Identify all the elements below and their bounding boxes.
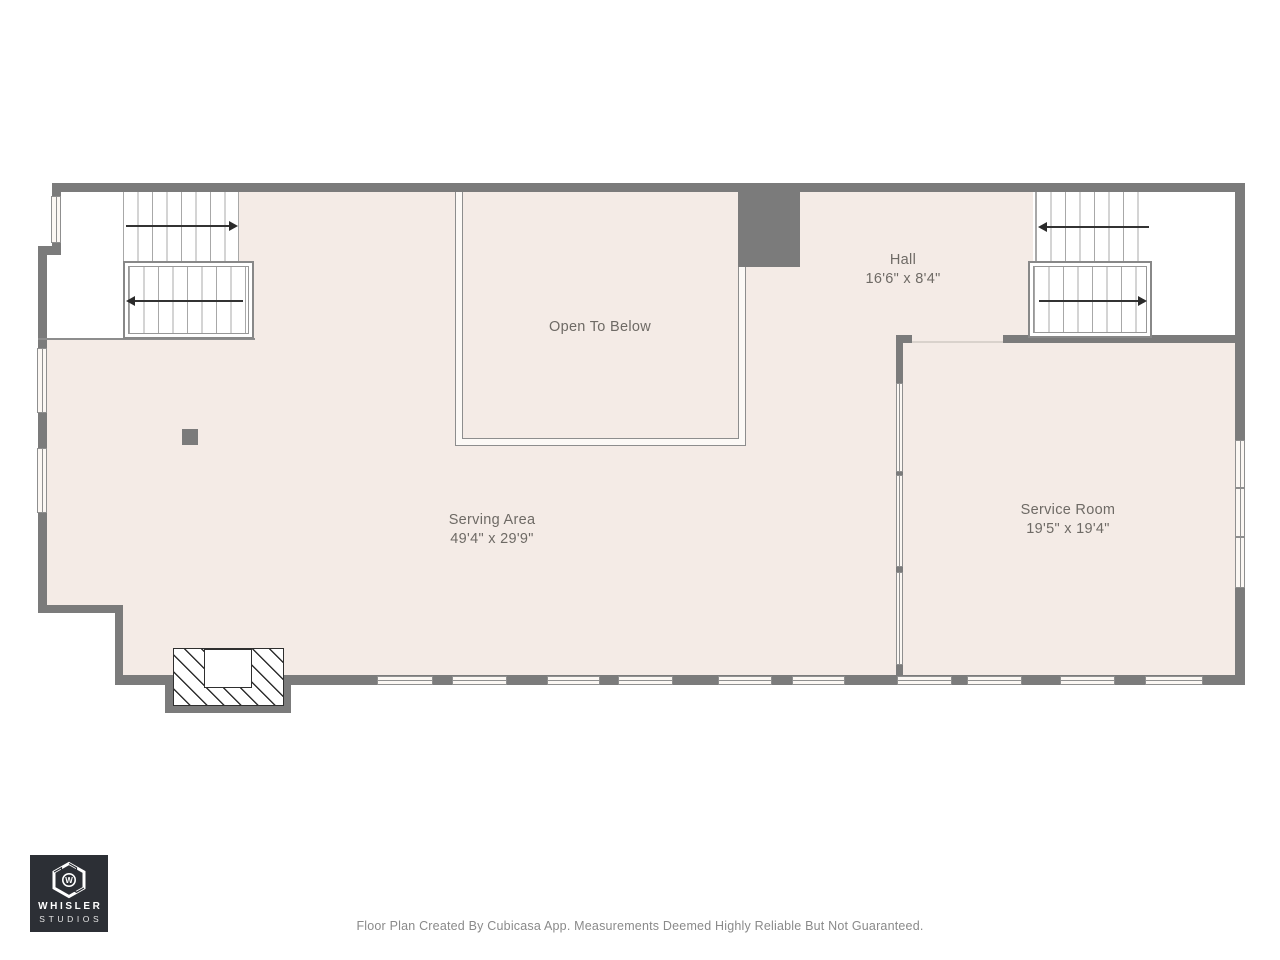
stairs-down-arrow-left-line: [135, 300, 243, 302]
window-pane-line: [899, 476, 900, 566]
logo-name-line2: STUDIOS: [36, 914, 103, 924]
window-pane-line: [1146, 680, 1202, 681]
window-pane-line: [56, 197, 57, 242]
stairs-up-arrow-left-line: [126, 225, 229, 227]
service-room-label: Service Room 19'5" x 19'4": [968, 501, 1168, 539]
exterior-notch: [47, 605, 115, 676]
stairs-down-arrow-left-head: [126, 296, 135, 306]
whisler-hexagon-monogram-icon: W: [49, 861, 89, 899]
serving-area-label: Serving Area 49'4" x 29'9": [392, 511, 592, 549]
window: [896, 475, 903, 567]
window: [967, 676, 1022, 685]
window-pane-line: [1240, 489, 1241, 536]
disclaimer-text: Floor Plan Created By Cubicasa App. Meas…: [0, 919, 1280, 933]
service-room-opening-threshold: [912, 341, 1003, 343]
hall-name: Hall: [803, 251, 1003, 270]
column-post: [182, 429, 198, 445]
open-to-below-floor: [462, 190, 739, 439]
window: [51, 196, 61, 243]
window: [718, 676, 772, 685]
window: [452, 676, 507, 685]
floor-plan-drawing: Open To Below Hall 16'6" x 8'4" Serving …: [0, 0, 1280, 960]
window-pane-line: [793, 680, 844, 681]
right-exterior-wall: [1235, 183, 1245, 685]
whisler-studios-logo: W WHISLER STUDIOS: [30, 855, 108, 932]
window: [896, 572, 903, 665]
window: [37, 448, 47, 513]
service-room-door-stub: [896, 335, 912, 343]
service-room-dimensions: 19'5" x 19'4": [968, 520, 1168, 539]
window-pane-line: [1240, 538, 1241, 587]
fireplace-firebox: [204, 649, 252, 688]
window-pane-line: [42, 349, 43, 412]
hall-dimensions: 16'6" x 8'4": [803, 270, 1003, 289]
window: [37, 348, 47, 413]
window: [1060, 676, 1115, 685]
left-wall-jog-lower: [38, 605, 123, 613]
window-pane-line: [898, 680, 951, 681]
open-to-below-label: Open To Below: [460, 318, 740, 337]
window-pane-line: [378, 680, 432, 681]
stairs-up-arrow-left-head: [229, 221, 238, 231]
stairs-up-arrow-right-line: [1047, 226, 1149, 228]
logo-name-line1: WHISLER: [36, 901, 103, 912]
window-pane-line: [899, 573, 900, 664]
window-pane-line: [1061, 680, 1114, 681]
window-pane-line: [42, 449, 43, 512]
window: [377, 676, 433, 685]
left-exterior-wall-lower: [38, 246, 47, 613]
window: [1145, 676, 1203, 685]
window: [1235, 440, 1245, 488]
serving-area-dimensions: 49'4" x 29'9": [392, 530, 592, 549]
window: [897, 676, 952, 685]
stairs-down-arrow-right-head: [1138, 296, 1147, 306]
window-pane-line: [453, 680, 506, 681]
top-exterior-wall: [52, 183, 1245, 192]
stairs-up-arrow-right-head: [1038, 222, 1047, 232]
window-pane-line: [619, 680, 672, 681]
stairs-down-arrow-right-line: [1039, 300, 1138, 302]
window-pane-line: [548, 680, 599, 681]
window: [896, 383, 903, 472]
service-room-name: Service Room: [968, 501, 1168, 520]
chimney-block: [738, 192, 800, 267]
window: [1235, 537, 1245, 588]
window-pane-line: [1240, 441, 1241, 487]
left-exterior-wall-bottom: [115, 613, 123, 685]
hall-label: Hall 16'6" x 8'4": [803, 251, 1003, 289]
window: [547, 676, 600, 685]
window-pane-line: [968, 680, 1021, 681]
serving-area-name: Serving Area: [392, 511, 592, 530]
window: [792, 676, 845, 685]
floor-plan-canvas: Open To Below Hall 16'6" x 8'4" Serving …: [0, 0, 1280, 960]
window: [1235, 488, 1245, 537]
logo-monogram: W: [65, 876, 73, 885]
window-pane-line: [719, 680, 771, 681]
stairs-upper-flight-left: [123, 192, 239, 261]
window-pane-line: [899, 384, 900, 471]
window: [618, 676, 673, 685]
